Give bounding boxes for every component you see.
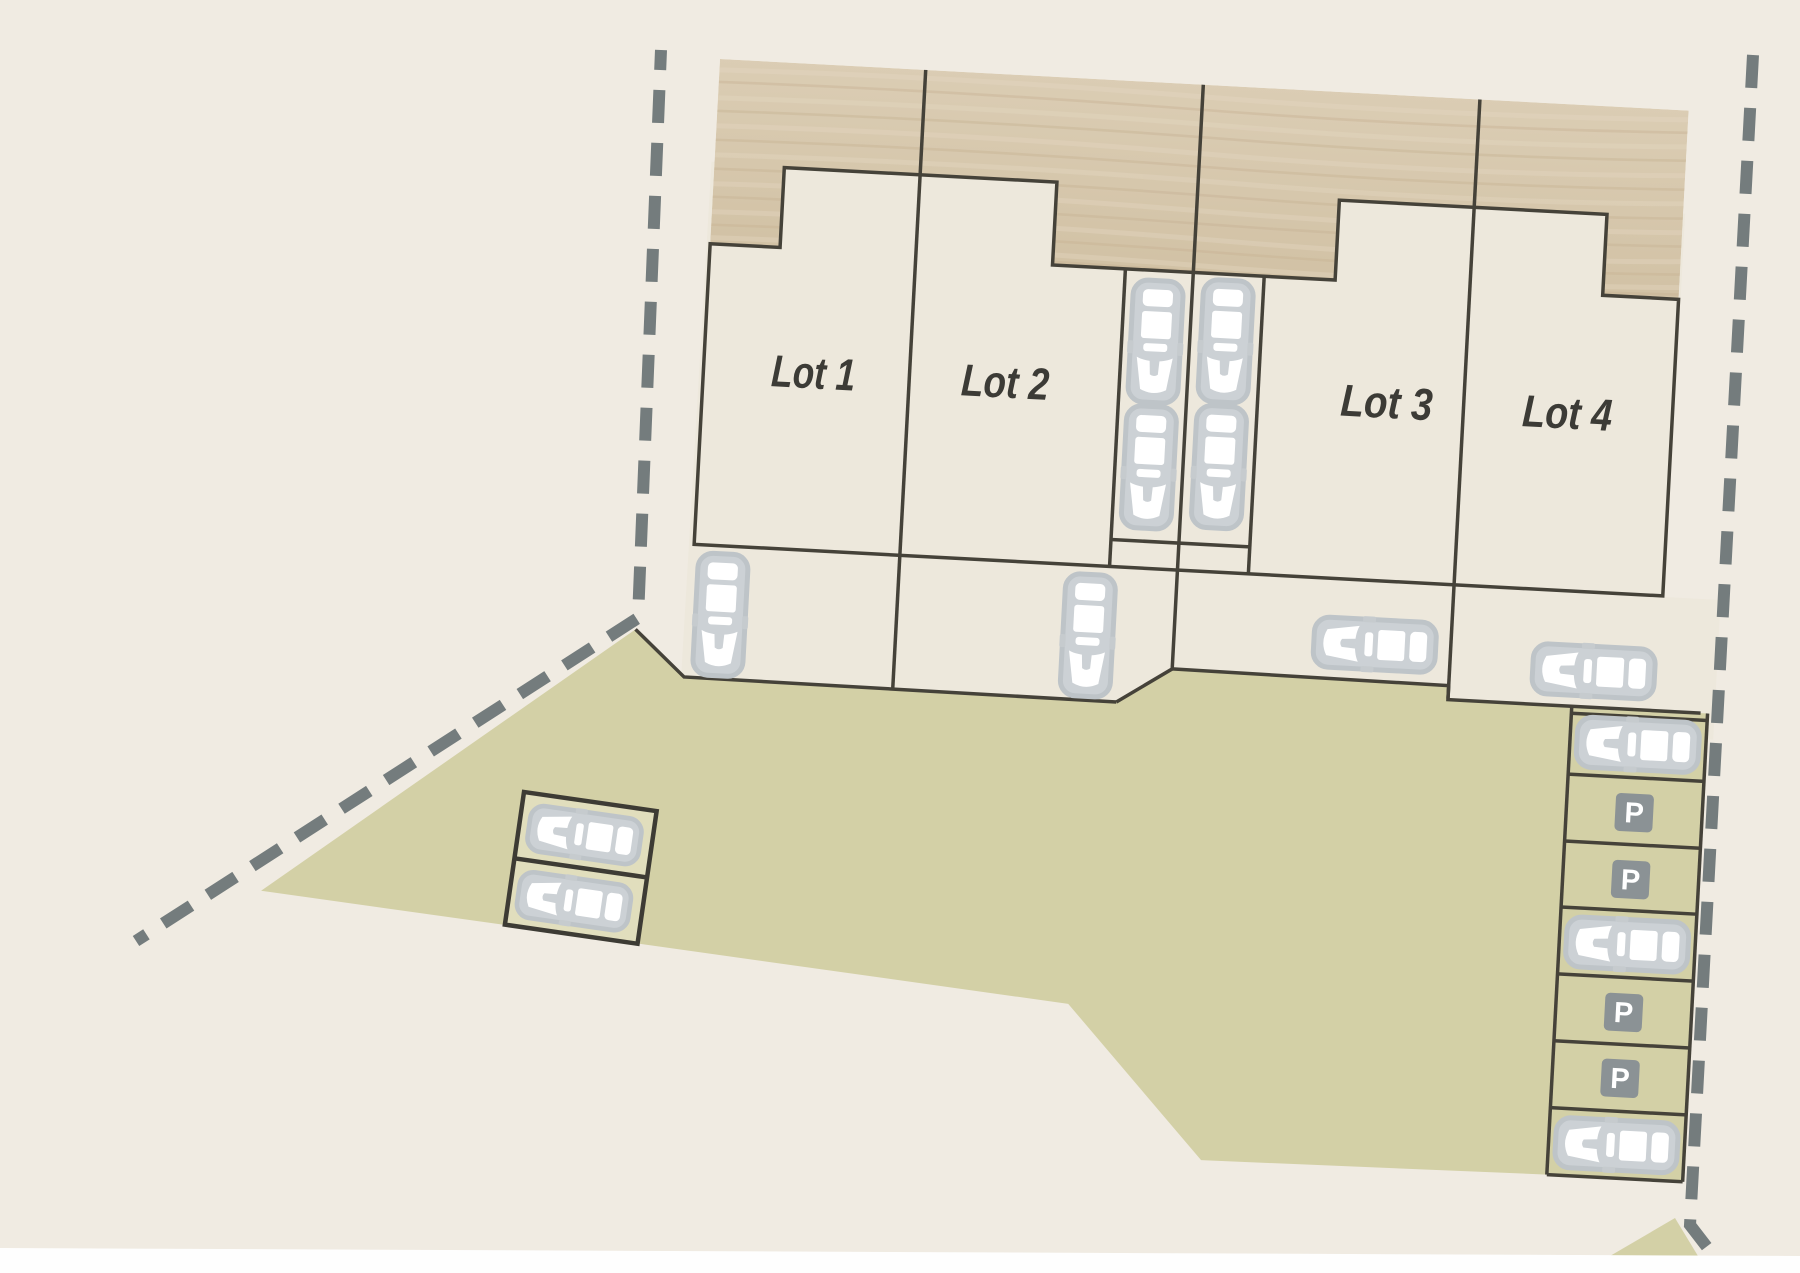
- svg-text:Lot 3: Lot 3: [1339, 375, 1434, 431]
- svg-text:P: P: [1624, 797, 1645, 830]
- svg-text:P: P: [1609, 1063, 1630, 1096]
- svg-text:Lot 4: Lot 4: [1521, 385, 1614, 441]
- svg-text:P: P: [1620, 864, 1641, 897]
- svg-text:Lot 2: Lot 2: [960, 354, 1051, 410]
- svg-text:P: P: [1613, 997, 1634, 1030]
- svg-text:Lot 1: Lot 1: [770, 345, 857, 400]
